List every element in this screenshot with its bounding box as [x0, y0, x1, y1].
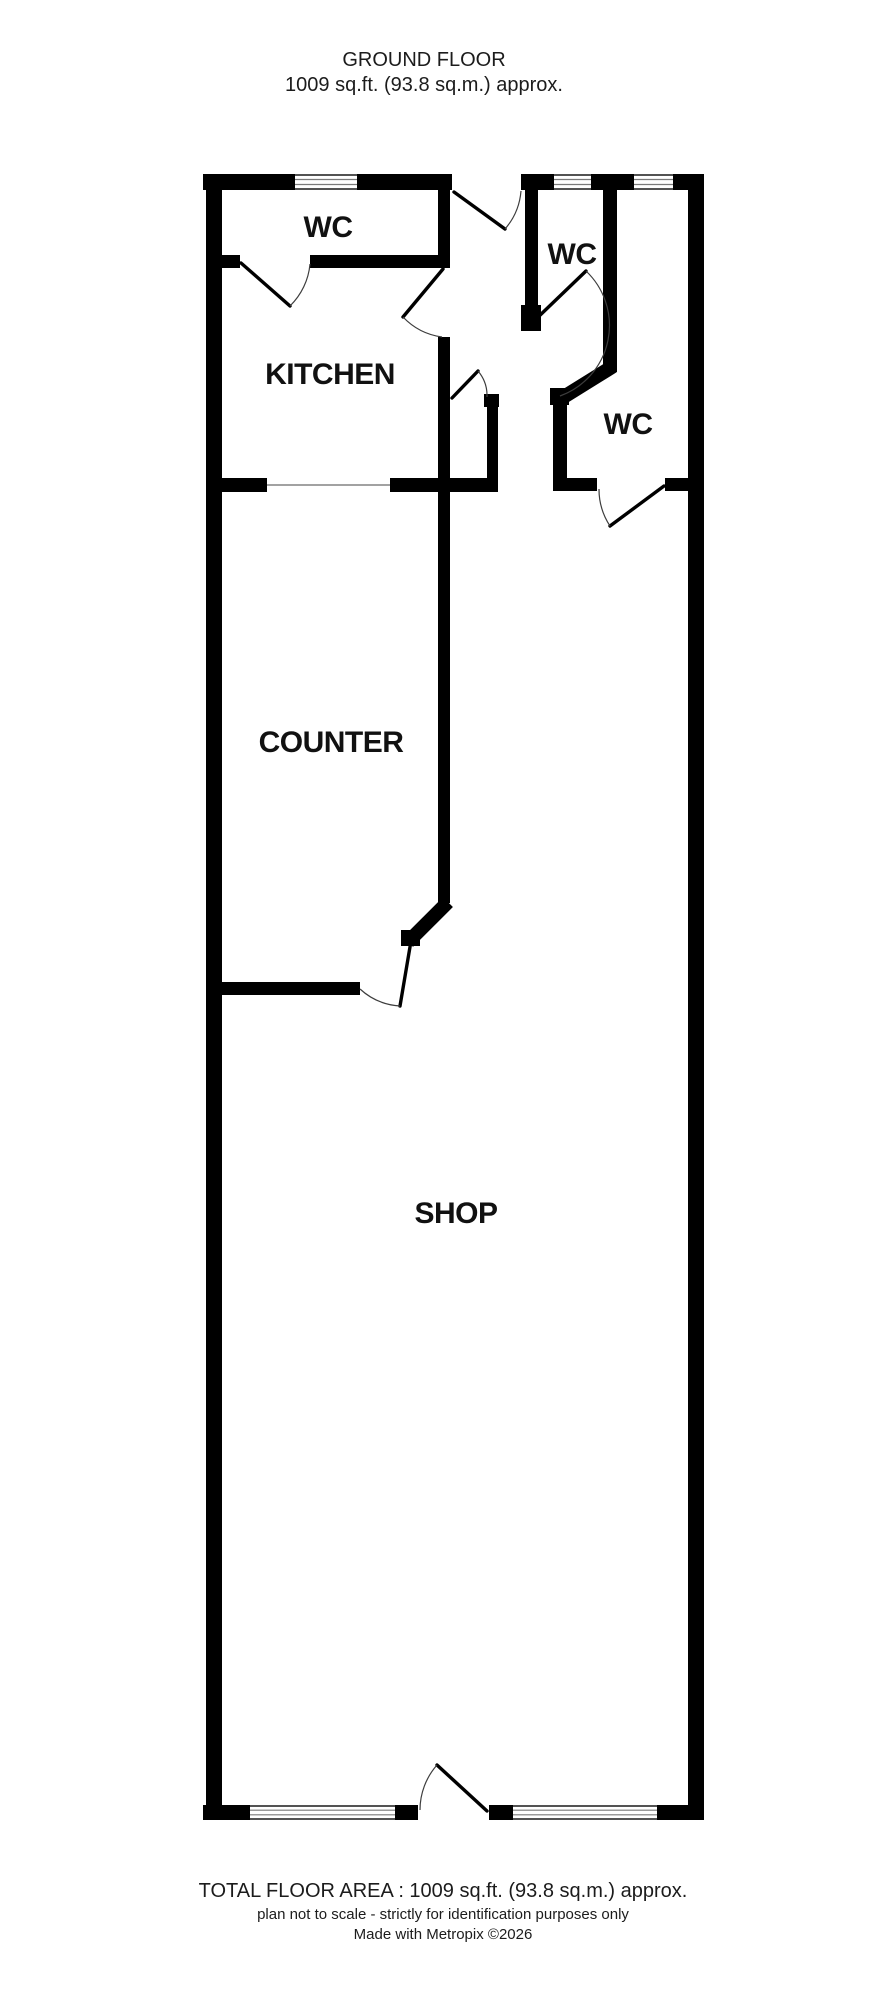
wc3-bottom-wall-left: [553, 478, 597, 491]
counter-right-wall: [438, 492, 450, 903]
wc3-bottom-wall-right: [665, 478, 704, 491]
window-top-3: [634, 174, 673, 190]
room-label-kitchen: KITCHEN: [265, 358, 395, 391]
wc3-left-wall: [553, 392, 567, 490]
bottom-wall-segment-1: [203, 1805, 250, 1820]
plan-footer: TOTAL FLOOR AREA : 1009 sq.ft. (93.8 sq.…: [0, 1878, 886, 1945]
kitchen-divider-wall: [390, 478, 498, 492]
door-wc-right: [599, 486, 664, 526]
window-bottom-1: [250, 1805, 395, 1820]
wc2-right-wall: [603, 190, 617, 372]
right-wall: [688, 174, 704, 1820]
window-top-1: [295, 174, 357, 190]
door-front-entrance: [420, 1765, 487, 1811]
left-wall: [206, 174, 222, 1820]
disclaimer-text: plan not to scale - strictly for identif…: [0, 1904, 886, 1925]
wc2-left-wall: [525, 190, 538, 318]
door-wc-top-left: [241, 263, 310, 306]
counter-bottom-wall: [206, 982, 360, 995]
window-bottom-2: [513, 1805, 657, 1820]
room-label-wc-top-left: WC: [304, 211, 353, 244]
top-wall-segment-3: [521, 174, 554, 190]
bottom-wall-segment-3: [489, 1805, 513, 1820]
kitchen-right-wall-lower: [438, 337, 450, 478]
window-top-2: [554, 174, 591, 190]
bottom-wall-segment-4: [657, 1805, 704, 1820]
floor-plan-svg: WC KITCHEN WC WC COUNTER SHOP: [0, 0, 886, 2012]
cupboard-hinge-block: [484, 394, 499, 407]
cupboard-stub-wall: [487, 398, 498, 478]
top-wall-segment-5: [673, 174, 704, 190]
credit-text: Made with Metropix ©2026: [0, 1925, 886, 1945]
kitchen-right-wall-upper: [438, 190, 450, 268]
room-label-wc-right: WC: [604, 408, 653, 441]
wc1-bottom-wall-stub: [206, 255, 240, 268]
door-rear-entrance: [454, 191, 521, 229]
room-label-wc-middle: WC: [548, 238, 597, 271]
top-wall-segment-4: [591, 174, 634, 190]
room-label-shop: SHOP: [414, 1197, 497, 1230]
floorplan-page: GROUND FLOOR 1009 sq.ft. (93.8 sq.m.) ap…: [0, 0, 886, 2012]
room-label-counter: COUNTER: [259, 726, 405, 759]
bottom-wall-segment-2: [395, 1805, 418, 1820]
wc3-door-hinge-block: [550, 388, 569, 405]
door-cupboard: [452, 371, 487, 398]
total-floor-area-text: TOTAL FLOOR AREA : 1009 sq.ft. (93.8 sq.…: [0, 1878, 886, 1904]
top-wall-segment-1: [203, 174, 295, 190]
kitchen-divider-stub: [206, 478, 267, 492]
top-wall-segment-2: [357, 174, 452, 190]
wc1-bottom-wall: [310, 255, 450, 268]
door-counter: [360, 941, 411, 1006]
door-kitchen: [403, 269, 443, 337]
